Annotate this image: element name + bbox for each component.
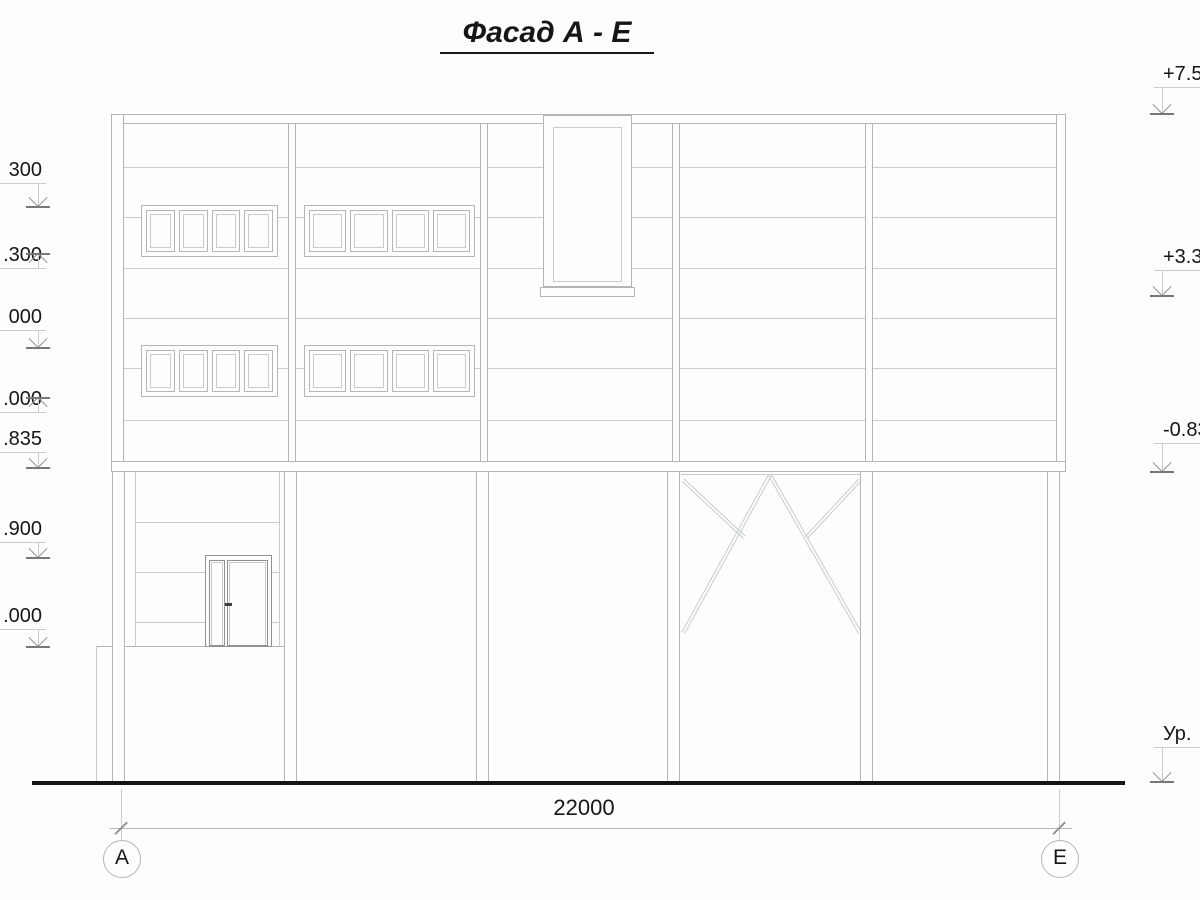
siding-line xyxy=(135,522,279,523)
axis-bubble-a: А xyxy=(103,840,141,878)
window-glass xyxy=(396,354,425,388)
column xyxy=(860,472,873,782)
window-pane xyxy=(433,350,470,392)
window-glass xyxy=(248,354,269,388)
window-pane xyxy=(244,210,273,252)
window-pane xyxy=(212,210,241,252)
window-pane xyxy=(309,210,346,252)
door-leaf-right xyxy=(227,560,268,646)
entry-step-line xyxy=(96,646,97,781)
window-group xyxy=(141,345,278,397)
window-glass xyxy=(396,214,425,248)
extension-line xyxy=(1059,789,1060,846)
door-handle xyxy=(225,603,232,606)
window-glass xyxy=(216,214,237,248)
window-pane xyxy=(244,350,273,392)
brace-diagonal xyxy=(805,479,862,540)
elevation-stem xyxy=(1162,747,1163,781)
elevation-stem xyxy=(1162,87,1163,113)
window-pane xyxy=(179,350,208,392)
leader-line xyxy=(0,183,46,184)
window-pane xyxy=(392,350,429,392)
door-leaf-panel xyxy=(229,562,266,645)
window-pane xyxy=(146,350,175,392)
panel-joint-line xyxy=(124,420,1056,421)
elevation-label: Ур. xyxy=(1163,724,1200,745)
level-base-line xyxy=(26,557,50,559)
window-glass xyxy=(150,214,171,248)
column xyxy=(284,472,297,782)
level-base-line xyxy=(26,397,50,399)
window-glass xyxy=(354,354,383,388)
extension-line xyxy=(121,789,122,846)
axis-label-a: А xyxy=(115,846,129,869)
axis-label-e: Е xyxy=(1053,846,1067,869)
facade-mullion xyxy=(865,124,873,461)
leader-line xyxy=(1154,747,1200,748)
facade-mullion xyxy=(480,124,488,461)
window-pane xyxy=(212,350,241,392)
window-group xyxy=(304,345,475,397)
elevation-label: +7.500 xyxy=(1163,64,1200,85)
window-group xyxy=(304,205,475,257)
column xyxy=(476,472,489,782)
stair-shaft-sill xyxy=(540,287,635,297)
siding-edge-line xyxy=(279,472,280,646)
window-pane xyxy=(350,350,387,392)
door-leaf-left xyxy=(209,560,225,646)
ground-line xyxy=(32,781,1125,785)
level-base-line xyxy=(26,206,50,208)
level-base-line xyxy=(1150,471,1174,473)
level-base-line xyxy=(1150,295,1174,297)
brace-diagonal xyxy=(682,479,746,539)
leader-line xyxy=(0,542,46,543)
column xyxy=(1047,472,1060,782)
leader-line xyxy=(0,412,46,413)
elevation-label: 300 xyxy=(0,160,42,181)
elevation-stem xyxy=(38,183,39,206)
axis-bubble-e: Е xyxy=(1041,840,1079,878)
entry-door xyxy=(205,555,272,647)
window-group xyxy=(141,205,278,257)
elevation-label: .835 xyxy=(0,429,42,450)
elevation-label: 000 xyxy=(0,307,42,328)
window-glass xyxy=(354,214,383,248)
window-pane xyxy=(392,210,429,252)
window-pane xyxy=(433,210,470,252)
leader-line xyxy=(0,629,46,630)
level-base-line xyxy=(26,467,50,469)
window-glass xyxy=(183,214,204,248)
leader-line xyxy=(1154,443,1200,444)
siding-edge-line xyxy=(135,472,136,646)
leader-line xyxy=(1154,270,1200,271)
dimension-line xyxy=(110,828,1072,829)
window-glass xyxy=(216,354,237,388)
facade-mullion xyxy=(288,124,296,461)
window-glass xyxy=(248,214,269,248)
level-base-line xyxy=(26,347,50,349)
leader-line xyxy=(0,452,46,453)
bottom-belt-band xyxy=(111,461,1066,472)
level-base-line xyxy=(1150,113,1174,115)
facade-mullion xyxy=(672,124,680,461)
level-base-line xyxy=(1150,781,1174,783)
column xyxy=(112,472,125,782)
elevation-label: .000 xyxy=(0,606,42,627)
window-pane xyxy=(350,210,387,252)
right-edge-band xyxy=(1056,114,1066,472)
door-leaf-panel xyxy=(211,562,223,645)
window-pane xyxy=(309,350,346,392)
window-glass xyxy=(313,214,342,248)
brace-diagonal xyxy=(682,474,772,634)
stair-shaft-inner xyxy=(553,127,622,282)
stair-shaft xyxy=(543,115,632,287)
window-pane xyxy=(146,210,175,252)
leader-line xyxy=(0,268,46,269)
left-edge-band xyxy=(111,114,124,472)
dimension-label: 22000 xyxy=(484,795,684,821)
level-base-line xyxy=(26,253,50,255)
drawing-title: Фасад А - Е xyxy=(440,16,654,54)
window-pane xyxy=(179,210,208,252)
elevation-stem xyxy=(1162,443,1163,471)
window-glass xyxy=(437,354,466,388)
brace-diagonal xyxy=(768,474,862,634)
elevation-label: +3.300 xyxy=(1163,247,1200,268)
elevation-stem xyxy=(1162,270,1163,295)
level-base-line xyxy=(26,646,50,648)
window-glass xyxy=(150,354,171,388)
elevation-label: -0.835 xyxy=(1163,420,1200,441)
leader-line xyxy=(0,330,46,331)
elevation-label: .900 xyxy=(0,519,42,540)
panel-joint-line xyxy=(124,318,1056,319)
column xyxy=(667,472,680,782)
window-glass xyxy=(183,354,204,388)
window-glass xyxy=(313,354,342,388)
window-glass xyxy=(437,214,466,248)
leader-line xyxy=(1154,87,1200,88)
facade-elevation-drawing: Фасад А - Е xyxy=(0,0,1200,900)
